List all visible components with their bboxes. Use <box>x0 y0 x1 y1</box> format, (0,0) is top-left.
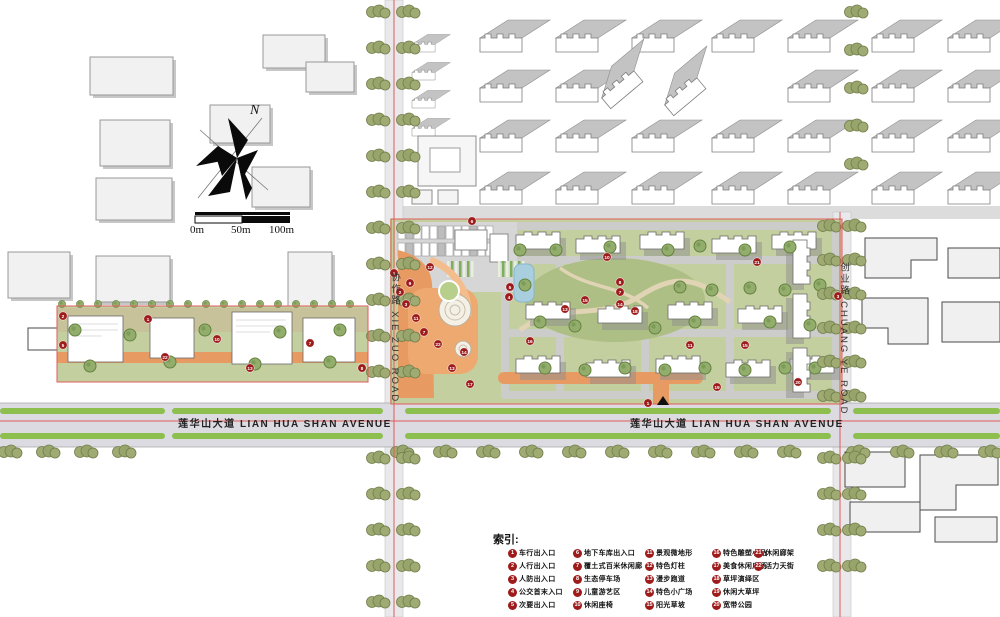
map-marker-16: 16 <box>526 337 534 345</box>
service-building <box>455 230 487 250</box>
hedge-tree <box>130 300 137 307</box>
tree <box>649 322 661 334</box>
context-slab-building <box>480 172 550 204</box>
hedge-tree <box>310 300 317 307</box>
svg-text:8: 8 <box>361 366 364 372</box>
tree <box>659 364 671 376</box>
context-slab-building <box>948 20 1000 52</box>
svg-text:14: 14 <box>617 302 623 308</box>
svg-text:17: 17 <box>467 382 473 388</box>
map-marker-22: 22 <box>434 340 442 348</box>
legend-item-number: 20 <box>712 601 721 610</box>
context-small-buildings <box>412 136 476 204</box>
street-tree <box>843 559 867 572</box>
legend-item-12: 12特色灯柱 <box>645 561 685 571</box>
context-slab-building <box>556 172 626 204</box>
context-slab-building <box>632 20 702 52</box>
legend-item-14: 14特色小广场 <box>645 587 693 597</box>
tree <box>662 244 674 256</box>
legend-item-number: 10 <box>573 601 582 610</box>
hedge-tree <box>346 300 353 307</box>
map-marker-3: 3 <box>402 300 410 308</box>
svg-text:5: 5 <box>62 343 65 349</box>
hedge-tree <box>166 300 173 307</box>
tree <box>674 281 686 293</box>
hedge-tree <box>274 300 281 307</box>
site-building <box>786 294 810 344</box>
context-residential-buildings <box>412 20 1000 204</box>
legend-item-number: 14 <box>645 588 654 597</box>
avenue-label-east: 莲华山大道 LIAN HUA SHAN AVENUE <box>628 415 846 430</box>
legend-item-number: 18 <box>712 575 721 584</box>
tree <box>84 360 96 372</box>
map-marker-9: 9 <box>406 279 414 287</box>
legend-item-number: 11 <box>645 549 654 558</box>
svg-text:7: 7 <box>423 330 426 336</box>
hedge-tree <box>238 300 245 307</box>
tree <box>334 324 346 336</box>
legend-item-number: 5 <box>508 601 517 610</box>
street-tree <box>397 5 421 18</box>
map-marker-1: 1 <box>144 315 152 323</box>
xiezuo-road-label: 协作路 XIE ZUO ROAD <box>387 272 401 402</box>
parking-stall <box>422 226 429 239</box>
map-marker-5: 5 <box>506 283 514 291</box>
tree <box>784 241 796 253</box>
hedge-tree <box>76 300 83 307</box>
svg-text:14: 14 <box>461 350 467 356</box>
legend-item-21: 21休闲廊架 <box>754 548 794 558</box>
context-slab-building <box>480 70 550 102</box>
street-tree <box>845 157 869 170</box>
site-building <box>576 236 626 260</box>
tree <box>124 329 136 341</box>
street-tree <box>397 487 421 500</box>
svg-text:10: 10 <box>214 337 220 343</box>
svg-text:22: 22 <box>435 342 441 348</box>
svg-text:13: 13 <box>562 307 568 313</box>
legend-item-label: 活力天街 <box>765 561 794 571</box>
tree <box>699 362 711 374</box>
green-feature-circle <box>439 281 459 301</box>
scale-50m: 50m <box>231 224 251 236</box>
legend-item-label: 宽带公园 <box>723 600 752 610</box>
tree <box>764 316 776 328</box>
industrial-building <box>8 252 73 301</box>
hedge-tree <box>256 300 263 307</box>
legend-item-number: 15 <box>645 601 654 610</box>
tree <box>539 362 551 374</box>
industrial-building <box>100 120 173 169</box>
parking-stall <box>422 243 429 256</box>
svg-text:16: 16 <box>527 339 533 345</box>
legend-item-number: 19 <box>712 588 721 597</box>
map-marker-1: 1 <box>644 399 652 407</box>
hedge-tree <box>58 300 65 307</box>
context-slab-building <box>948 172 1000 204</box>
eco-parking-stripe <box>510 261 513 277</box>
hedge-tree <box>148 300 155 307</box>
context-slab-building <box>948 70 1000 102</box>
tree <box>779 362 791 374</box>
street-tree <box>397 523 421 536</box>
street-tree <box>397 595 421 608</box>
legend-item-label: 儿童游艺区 <box>584 587 621 597</box>
hedge-tree <box>256 300 263 307</box>
industrial-building <box>96 256 173 305</box>
tree <box>69 324 81 336</box>
street-tree <box>845 119 869 132</box>
tree <box>514 244 526 256</box>
legend-item-label: 漫步跑道 <box>656 574 685 584</box>
service-building <box>490 234 508 262</box>
legend-item-label: 休闲廊架 <box>765 548 794 558</box>
map-marker-13: 13 <box>561 305 569 313</box>
legend-item-number: 3 <box>508 575 517 584</box>
tree <box>324 356 336 368</box>
legend-item-label: 人行出入口 <box>519 561 556 571</box>
tree <box>739 364 751 376</box>
hedge-tree <box>238 300 245 307</box>
context-slab-building <box>632 120 702 152</box>
hedge-tree <box>274 300 281 307</box>
map-marker-22: 22 <box>161 353 169 361</box>
site-plan-page: 6112923117221413175410871514131816111521… <box>0 0 1000 617</box>
legend-item-15: 15阳光草坡 <box>645 600 685 610</box>
svg-text:18: 18 <box>632 309 638 315</box>
context-slab-building <box>872 70 942 102</box>
svg-text:12: 12 <box>427 265 433 271</box>
legend-item-label: 阳光草坡 <box>656 600 685 610</box>
map-marker-14: 14 <box>460 348 468 356</box>
tree <box>694 240 706 252</box>
map-marker-4: 4 <box>505 293 513 301</box>
tree <box>579 364 591 376</box>
eco-parking-stripe <box>506 261 509 277</box>
tree <box>550 244 562 256</box>
industrial-building <box>90 57 176 98</box>
site-plan-drawing: 6112923117221413175410871514131816111521… <box>0 0 1000 617</box>
legend-item-13: 13漫步跑道 <box>645 574 685 584</box>
chuangye-road-label: 创业路 CHUANG YE ROAD <box>836 262 850 407</box>
hedge-tree <box>94 300 101 307</box>
legend-item-4: 4公交首末入口 <box>508 587 563 597</box>
legend-item-number: 13 <box>645 575 654 584</box>
svg-text:8: 8 <box>619 280 622 286</box>
context-slab-building <box>480 20 550 52</box>
hedge-tree <box>346 300 353 307</box>
tree <box>706 284 718 296</box>
scale-0m: 0m <box>190 224 204 236</box>
tree <box>779 284 791 296</box>
svg-text:7: 7 <box>309 341 312 347</box>
context-slab-building <box>556 120 626 152</box>
street-tree <box>843 487 867 500</box>
legend-item-number: 22 <box>754 562 763 571</box>
svg-text:6: 6 <box>471 219 474 225</box>
map-marker-6: 6 <box>468 217 476 225</box>
map-marker-15: 15 <box>581 296 589 304</box>
legend-item-number: 8 <box>573 575 582 584</box>
hedge-tree <box>112 300 119 307</box>
eco-parking-stripe <box>459 261 462 277</box>
site-building <box>786 294 810 344</box>
map-marker-21: 21 <box>753 258 761 266</box>
tree <box>739 244 751 256</box>
legend-item-label: 特色灯柱 <box>656 561 685 571</box>
context-slab-building <box>412 90 451 108</box>
hedge-tree <box>184 300 191 307</box>
left-commercial-strip <box>57 306 368 382</box>
legend-item-label: 特色小广场 <box>656 587 693 597</box>
avenue-label-west: 莲华山大道 LIAN HUA SHAN AVENUE <box>175 415 395 430</box>
street-tree <box>845 81 869 94</box>
map-marker-17: 17 <box>466 380 474 388</box>
svg-text:3: 3 <box>405 302 408 308</box>
svg-text:11: 11 <box>687 343 692 349</box>
hedge-tree <box>112 300 119 307</box>
industrial-building <box>306 62 357 95</box>
legend-item-number: 9 <box>573 588 582 597</box>
hedge-tree <box>328 300 335 307</box>
map-marker-5: 5 <box>59 341 67 349</box>
map-marker-10: 10 <box>213 335 221 343</box>
context-slab-building <box>872 20 942 52</box>
street-tree <box>397 149 421 162</box>
map-marker-7: 7 <box>306 339 314 347</box>
hedge-tree <box>148 300 155 307</box>
legend-item-2: 2人行出入口 <box>508 561 556 571</box>
hedge-tree <box>292 300 299 307</box>
site-building <box>786 348 810 398</box>
street-tree <box>845 43 869 56</box>
legend-item-19: 19休闲大草坪 <box>712 587 760 597</box>
lianhuashan-avenue <box>0 403 1000 447</box>
site-building <box>598 306 648 330</box>
eco-parking-stripe <box>463 261 466 277</box>
legend-item-label: 生态停车场 <box>584 574 621 584</box>
parking-stall <box>438 243 445 256</box>
tree <box>534 316 546 328</box>
map-marker-8: 8 <box>358 364 366 372</box>
context-slab-building <box>480 120 550 152</box>
hedge-tree <box>202 300 209 307</box>
legend-item-label: 地下车库出入口 <box>584 548 635 558</box>
eco-parking-stripe <box>502 261 505 277</box>
legend-item-number: 16 <box>712 549 721 558</box>
map-marker-2: 2 <box>59 312 67 320</box>
north-label: N <box>250 103 259 119</box>
legend-item-number: 17 <box>712 562 721 571</box>
legend-item-label: 公交首末入口 <box>519 587 563 597</box>
legend-item-6: 6地下车库出入口 <box>573 548 635 558</box>
svg-text:13: 13 <box>247 366 253 372</box>
hedge-tree <box>184 300 191 307</box>
map-marker-11: 11 <box>686 341 694 349</box>
legend-item-label: 次要出入口 <box>519 600 556 610</box>
site-building <box>738 306 788 330</box>
industrial-building <box>96 178 175 223</box>
street-tree <box>397 559 421 572</box>
context-slab-building <box>712 120 782 152</box>
legend-title: 索引: <box>493 531 519 547</box>
svg-text:5: 5 <box>509 285 512 291</box>
legend-item-number: 4 <box>508 588 517 597</box>
context-slab-building <box>712 172 782 204</box>
legend-item-7: 7覆土式百米休闲廊 <box>573 561 642 571</box>
map-marker-7: 7 <box>616 288 624 296</box>
hedge-tree <box>220 300 227 307</box>
context-slab-building <box>653 46 727 116</box>
tree <box>604 241 616 253</box>
legend-item-3: 3人防出入口 <box>508 574 556 584</box>
site-building <box>712 236 762 260</box>
industrial-building <box>252 167 313 210</box>
svg-text:20: 20 <box>795 380 801 386</box>
context-slab-building <box>788 172 858 204</box>
context-slab-building <box>632 172 702 204</box>
legend-item-number: 12 <box>645 562 654 571</box>
context-slab-building <box>412 90 451 108</box>
svg-text:15: 15 <box>582 298 588 304</box>
legend-item-11: 11景观微地形 <box>645 548 693 558</box>
tree <box>689 316 701 328</box>
map-marker-11: 11 <box>412 314 420 322</box>
tree <box>744 282 756 294</box>
context-slab-building <box>948 120 1000 152</box>
street-tree <box>397 451 421 464</box>
context-slab-building <box>412 62 451 80</box>
tree <box>519 279 531 291</box>
parking-stall <box>414 243 421 256</box>
scale-100m: 100m <box>269 224 294 236</box>
street-tree <box>845 5 869 18</box>
svg-text:15: 15 <box>742 343 748 349</box>
legend-item-label: 草坪演绎区 <box>723 574 760 584</box>
map-marker-7: 7 <box>420 328 428 336</box>
legend-item-number: 1 <box>508 549 517 558</box>
context-slab-building <box>712 20 782 52</box>
tree <box>199 324 211 336</box>
map-marker-18: 18 <box>631 307 639 315</box>
context-industrial-buildings <box>8 35 357 313</box>
svg-text:4: 4 <box>508 295 511 301</box>
parking-stall <box>438 226 445 239</box>
legend-item-number: 7 <box>573 562 582 571</box>
hedge-tree <box>310 300 317 307</box>
legend-item-10: 10休闲座椅 <box>573 600 613 610</box>
map-marker-19: 19 <box>713 383 721 391</box>
svg-text:21: 21 <box>754 260 760 266</box>
legend-item-number: 2 <box>508 562 517 571</box>
map-marker-13: 13 <box>448 364 456 372</box>
svg-text:1: 1 <box>147 317 150 323</box>
parking-stall <box>430 226 437 239</box>
map-marker-10: 10 <box>603 253 611 261</box>
map-marker-12: 12 <box>426 263 434 271</box>
context-slab-building <box>556 20 626 52</box>
legend-item-label: 休闲座椅 <box>584 600 613 610</box>
legend-item-8: 8生态停车场 <box>573 574 621 584</box>
map-marker-15: 15 <box>741 341 749 349</box>
street-tree <box>397 185 421 198</box>
legend: 索引: 1车行出入口2人行出入口3人防出入口4公交首末入口5次要出入口6地下车库… <box>493 531 805 617</box>
legend-item-label: 景观微地形 <box>656 548 693 558</box>
tree <box>804 319 816 331</box>
svg-text:19: 19 <box>714 385 720 391</box>
hedge-tree <box>202 300 209 307</box>
svg-text:7: 7 <box>619 290 622 296</box>
legend-item-20: 20宽带公园 <box>712 600 752 610</box>
map-marker-13: 13 <box>246 364 254 372</box>
eco-parking-stripe <box>498 261 501 277</box>
hedge-tree <box>130 300 137 307</box>
svg-text:13: 13 <box>449 366 455 372</box>
legend-item-1: 1车行出入口 <box>508 548 556 558</box>
context-slab-building <box>412 62 451 80</box>
parking-stall <box>446 226 453 239</box>
svg-text:1: 1 <box>647 401 650 407</box>
scale-bar <box>195 212 290 223</box>
svg-text:22: 22 <box>162 355 168 361</box>
hedge-tree <box>94 300 101 307</box>
context-slab-building <box>653 46 727 116</box>
street-tree <box>843 219 867 232</box>
map-marker-14: 14 <box>616 300 624 308</box>
parking-stall <box>430 243 437 256</box>
legend-item-label: 人防出入口 <box>519 574 556 584</box>
legend-item-label: 车行出入口 <box>519 548 556 558</box>
legend-item-label: 休闲大草坪 <box>723 587 760 597</box>
context-slab-building <box>872 120 942 152</box>
svg-text:11: 11 <box>413 316 418 322</box>
context-slab-building <box>872 172 942 204</box>
legend-item-22: 22活力天街 <box>754 561 794 571</box>
tree <box>569 320 581 332</box>
parking-stall <box>446 243 453 256</box>
hedge-tree <box>220 300 227 307</box>
legend-item-number: 6 <box>573 549 582 558</box>
legend-item-label: 覆土式百米休闲廊 <box>584 561 642 571</box>
legend-item-18: 18草坪演绎区 <box>712 574 760 584</box>
hedge-tree <box>166 300 173 307</box>
svg-text:10: 10 <box>604 255 610 261</box>
eco-parking-stripe <box>471 261 474 277</box>
svg-text:9: 9 <box>409 281 412 287</box>
hedge-tree <box>292 300 299 307</box>
site-building <box>526 302 576 326</box>
legend-item-number: 21 <box>754 549 763 558</box>
tree <box>619 362 631 374</box>
map-marker-20: 20 <box>794 378 802 386</box>
legend-item-9: 9儿童游艺区 <box>573 587 621 597</box>
map-marker-8: 8 <box>616 278 624 286</box>
tree <box>274 326 286 338</box>
hedge-tree <box>58 300 65 307</box>
eco-parking-stripe <box>467 261 470 277</box>
hedge-tree <box>76 300 83 307</box>
site-building <box>786 348 810 398</box>
legend-item-5: 5次要出入口 <box>508 600 556 610</box>
street-tree <box>397 113 421 126</box>
hedge-tree <box>328 300 335 307</box>
svg-text:2: 2 <box>62 314 65 320</box>
